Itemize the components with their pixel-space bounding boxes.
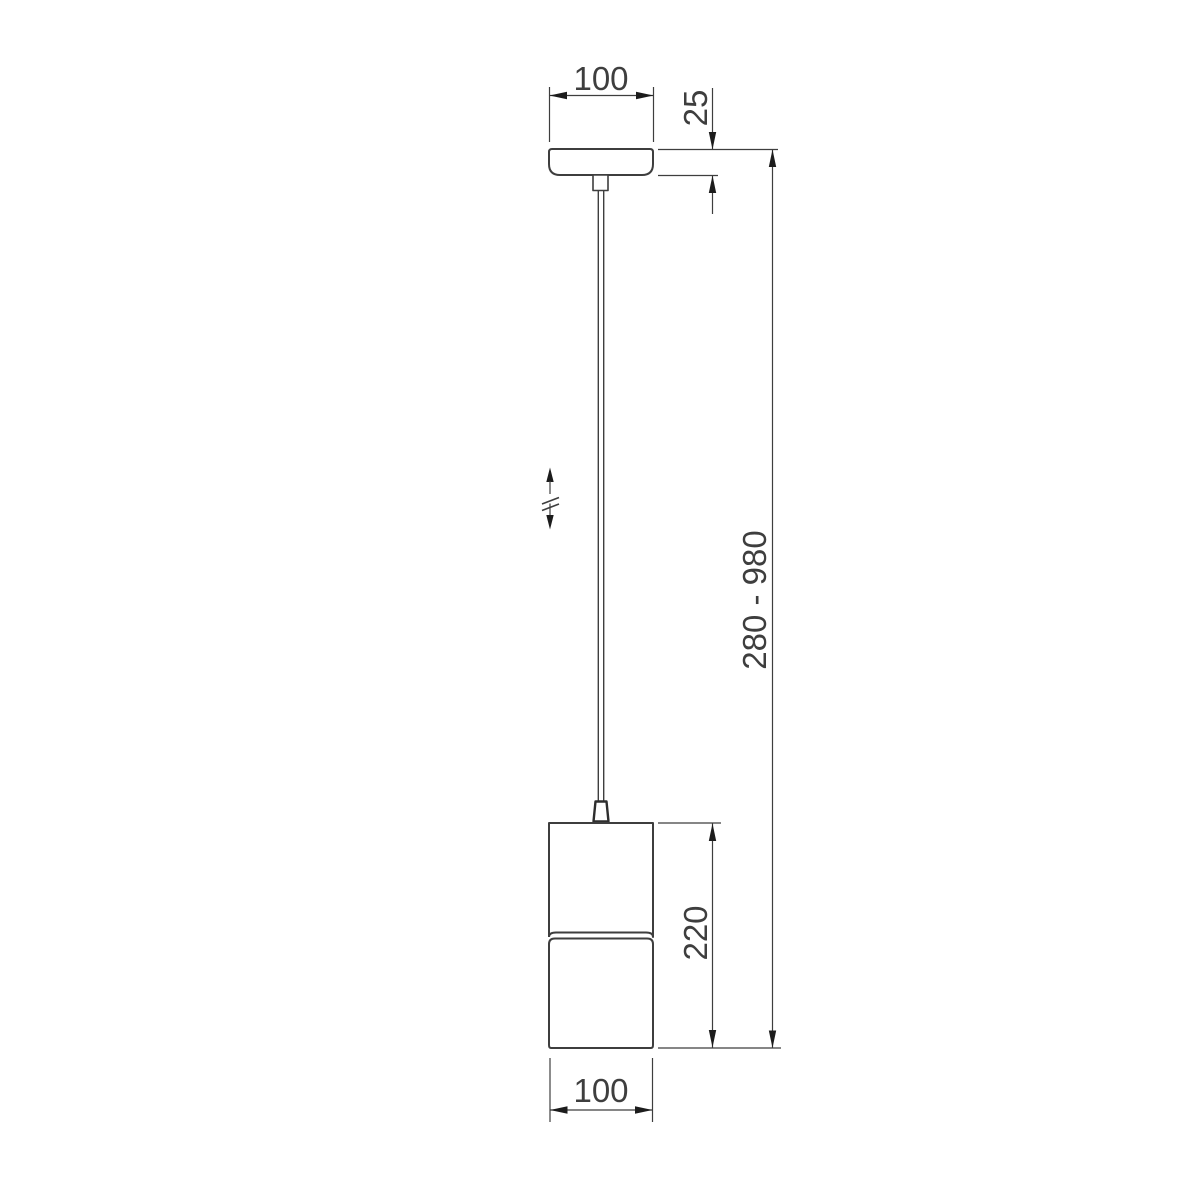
- ceiling-canopy: [549, 149, 653, 175]
- canopy-strain-relief: [593, 175, 608, 191]
- cable-gland: [594, 802, 609, 822]
- arrowhead: [636, 92, 654, 99]
- dim-canopy-height: 25: [658, 88, 778, 214]
- dimension-label: 25: [677, 90, 714, 127]
- arrowhead: [709, 1030, 716, 1048]
- arrowhead: [769, 150, 776, 168]
- arrowhead: [769, 1031, 776, 1049]
- technical-drawing: 100 25 280 - 980 220: [0, 0, 1200, 1200]
- drawing-canvas: 100 25 280 - 980 220: [0, 0, 1200, 1200]
- arrowhead: [550, 92, 568, 99]
- arrowhead: [550, 1106, 568, 1113]
- arrowhead: [709, 824, 716, 842]
- dimension-label: 100: [573, 1072, 628, 1109]
- dimension-label: 100: [573, 60, 628, 97]
- dimension-label: 280 - 980: [736, 530, 773, 669]
- dimension-label: 220: [677, 905, 714, 960]
- dim-overall-height: 280 - 980: [736, 150, 776, 1049]
- dim-body-width: 100: [550, 1058, 653, 1122]
- arrowhead: [709, 132, 716, 150]
- pendant-lamp: [549, 149, 653, 1048]
- arrowhead: [635, 1106, 653, 1113]
- suspension-cable: [598, 191, 603, 803]
- dim-canopy-width: 100: [550, 60, 654, 142]
- height-adjustable-icon: [542, 468, 559, 530]
- dim-body-height: 220: [658, 823, 781, 1048]
- lamp-body-upper: [549, 823, 653, 937]
- arrowhead: [709, 176, 716, 194]
- lamp-body-lower: [549, 939, 653, 1049]
